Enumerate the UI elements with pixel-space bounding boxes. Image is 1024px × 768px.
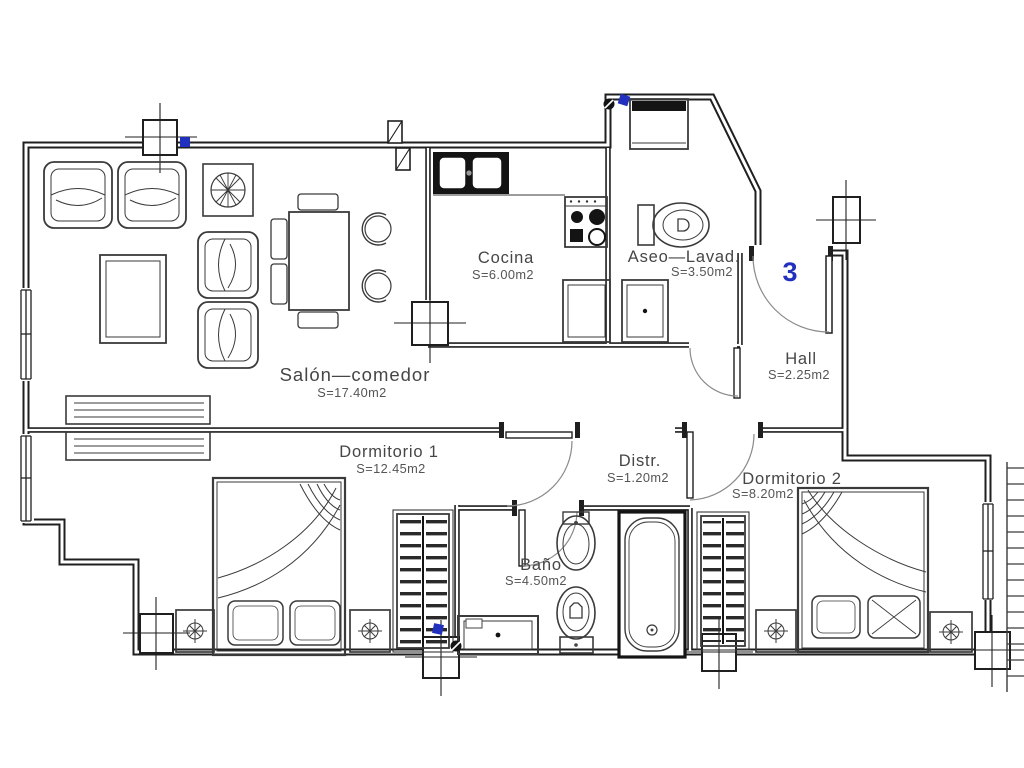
area-cocina: S=6.00m2 [472, 267, 534, 282]
corner-table-fan [203, 164, 253, 216]
coffee-table [100, 255, 166, 343]
label-cocina: Cocina [478, 249, 534, 267]
label-salon-comedor: Salón—comedor [280, 364, 431, 385]
aseo-cabinet [622, 280, 668, 342]
area-distribuidor: S=1.20m2 [607, 470, 669, 485]
columns [123, 103, 1024, 696]
blue-marker [432, 623, 444, 635]
floor-plan-page: Salón—comedor S=17.40m2 Cocina S=6.00m2 … [0, 0, 1024, 768]
label-distribuidor: Distr. [619, 452, 661, 470]
area-hall: S=2.25m2 [768, 367, 830, 382]
area-dormitorio-2: S=8.20m2 [732, 486, 794, 501]
wardrobe-bedroom1 [393, 510, 453, 652]
kitchen-sink [433, 152, 565, 195]
room-labels: Salón—comedor S=17.40m2 Cocina S=6.00m2 … [280, 248, 842, 588]
wardrobe-bedroom2 [697, 512, 749, 650]
sofa-top [44, 162, 186, 228]
radiator [66, 396, 210, 424]
switch-marker [466, 619, 482, 628]
bedroom1-door [506, 432, 572, 506]
nightstand [176, 610, 214, 652]
aseo-door [690, 348, 740, 398]
label-dormitorio-1: Dormitorio 1 [339, 443, 438, 461]
area-salon-comedor: S=17.40m2 [317, 385, 386, 400]
nightstand [350, 610, 390, 652]
wall-openings [18, 245, 996, 600]
dining-table-set [271, 194, 391, 328]
bed-2 [798, 488, 928, 652]
label-hall: Hall [785, 350, 817, 368]
unit-number-label: 3 [782, 257, 797, 287]
stove [565, 197, 607, 247]
aseo-toilet [638, 203, 709, 247]
bed-1 [213, 478, 345, 655]
bathroom-toilet [557, 587, 595, 653]
sofa-right [198, 232, 258, 368]
radiator [66, 432, 210, 460]
nightstand [930, 612, 972, 652]
kitchen-cabinet [563, 280, 610, 342]
floor-plan-drawing: Salón—comedor S=17.40m2 Cocina S=6.00m2 … [0, 0, 1024, 768]
area-aseo-lavadero: S=3.50m2 [671, 264, 733, 279]
column [394, 284, 466, 363]
bathtub [619, 512, 685, 657]
blue-marker [180, 137, 190, 147]
washing-machine [630, 99, 688, 149]
nightstand [756, 610, 796, 652]
area-dormitorio-1: S=12.45m2 [356, 461, 425, 476]
label-bano: Baño [520, 556, 562, 574]
area-bano: S=4.50m2 [505, 573, 567, 588]
